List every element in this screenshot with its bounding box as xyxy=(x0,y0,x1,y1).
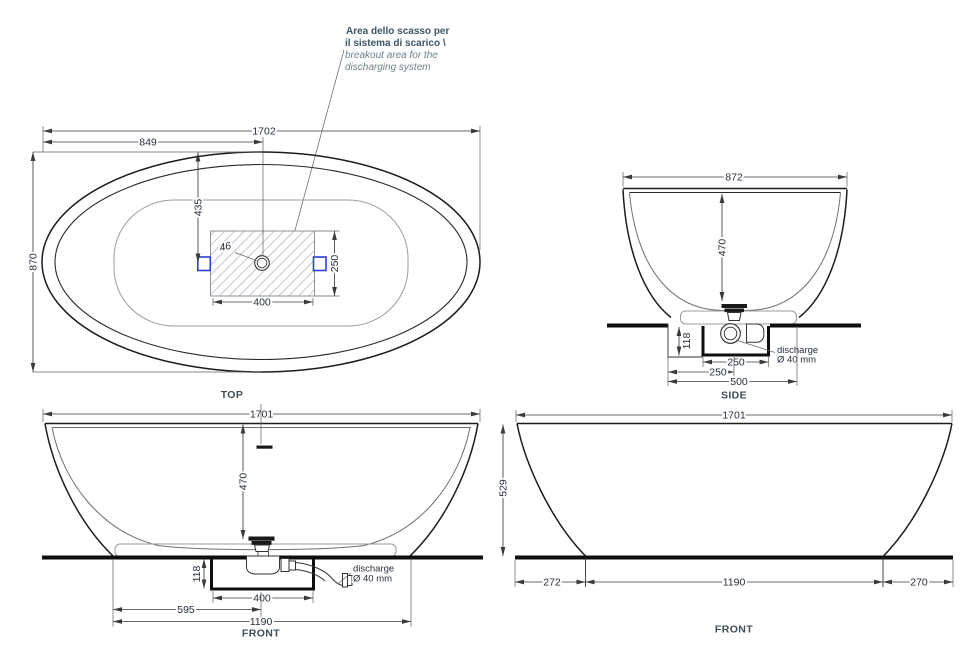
popup-waste xyxy=(722,304,748,308)
view-label-top: TOP xyxy=(221,389,244,401)
outer-wall-left xyxy=(623,190,671,318)
view-label-front: FRONT xyxy=(242,628,280,640)
top-view: 46 1702 849 870 435 250 400 TOP xyxy=(28,126,481,402)
dim-side-depth: 470 xyxy=(717,239,729,257)
dim-front2-height: 529 xyxy=(498,479,510,497)
popup-waste xyxy=(249,537,275,541)
side-view: discharge Ø 40 mm 872 470 118 250 250 50… xyxy=(607,172,861,402)
outer-wall-left xyxy=(517,424,586,557)
popup-waste-body xyxy=(255,545,270,552)
dim-front-length: 1701 xyxy=(250,409,274,421)
clip-left xyxy=(198,257,211,271)
view-label-front2: FRONT xyxy=(715,624,753,636)
dim-drain-offset: 435 xyxy=(193,199,205,217)
technical-drawing-page: Area dello scasso per il sistema di scar… xyxy=(0,0,974,645)
front-view-right: 1701 529 272 1190 270 FRONT xyxy=(498,410,954,636)
dim-breakout-height: 250 xyxy=(329,255,341,273)
bathtub-technical-drawing: Area dello scasso per il sistema di scar… xyxy=(0,0,974,645)
pipe-flange xyxy=(348,576,353,586)
popup-waste xyxy=(252,541,272,545)
dim-front-half-base: 595 xyxy=(177,604,195,616)
dim-side-trap-box: 250 xyxy=(727,357,745,369)
dim-front2-right: 270 xyxy=(910,577,928,589)
dim-front2-left: 272 xyxy=(543,577,561,589)
dim-front2-base: 1190 xyxy=(723,577,746,589)
annotation-line-3: breakout area for the xyxy=(345,50,438,61)
dim-front-base: 1190 xyxy=(250,616,273,628)
discharge-pipe xyxy=(296,570,326,582)
dim-front-recess-depth: 118 xyxy=(191,565,203,582)
annotation-line-1: Area dello scasso per xyxy=(346,26,449,37)
dim-front2-length: 1701 xyxy=(722,410,746,422)
annotation-line-2: il sistema di scarico \ xyxy=(345,38,446,49)
popup-waste-body xyxy=(728,313,742,321)
dim-side-recess-depth: 118 xyxy=(681,332,693,349)
outer-wall-right xyxy=(883,424,952,557)
dim-side-recess-width: 500 xyxy=(730,376,748,388)
discharge-diameter-label: Ø 40 mm xyxy=(353,574,392,585)
dim-front-box: 400 xyxy=(253,593,271,605)
inner-basin-line xyxy=(630,193,841,311)
dim-top-length: 1702 xyxy=(252,126,276,138)
siphon-trap xyxy=(247,556,280,574)
front-view-left: 1701 470 discharge Ø 40 mm 118 xyxy=(42,404,483,640)
clip-right xyxy=(314,257,327,271)
view-label-side: SIDE xyxy=(721,390,747,402)
outer-wall-right xyxy=(799,190,847,318)
outer-wall-left xyxy=(45,424,113,557)
dim-breakout-width: 400 xyxy=(253,297,271,309)
dim-front-depth: 470 xyxy=(238,473,250,491)
siphon-fitting xyxy=(289,561,296,570)
siphon-fitting xyxy=(281,559,289,572)
overflow-mark xyxy=(257,446,273,449)
annotation-line-4: discharging system xyxy=(345,62,431,73)
popup-waste xyxy=(725,309,745,313)
siphon-fitting xyxy=(747,324,764,342)
discharge-diameter-label: Ø 40 mm xyxy=(777,355,816,366)
dim-side-half-recess: 250 xyxy=(709,367,727,379)
dim-top-width: 870 xyxy=(28,253,40,271)
pipe-flange xyxy=(343,574,348,588)
dim-top-half-length: 849 xyxy=(139,137,157,149)
dim-side-top-width: 872 xyxy=(725,172,743,184)
discharge-pipe xyxy=(296,563,344,586)
